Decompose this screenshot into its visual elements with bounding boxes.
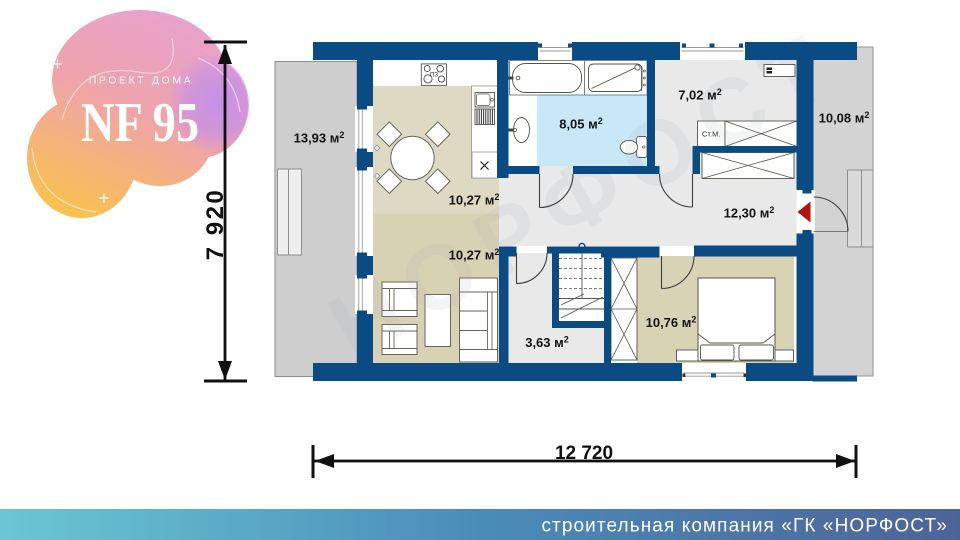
- svg-text:13,93 м2: 13,93 м2: [294, 130, 345, 146]
- svg-text:3,63 м2: 3,63 м2: [525, 334, 569, 350]
- svg-text:12 720: 12 720: [555, 443, 613, 464]
- svg-text:10,76 м2: 10,76 м2: [646, 314, 697, 330]
- svg-text:10,27 м2: 10,27 м2: [449, 247, 500, 263]
- svg-text:ПЗ: ПЗ: [430, 73, 438, 79]
- svg-text:ПРОЕКТ ДОМА: ПРОЕКТ ДОМА: [89, 75, 194, 87]
- svg-text:NF 95: NF 95: [81, 92, 199, 154]
- svg-text:8,05 м2: 8,05 м2: [559, 116, 603, 132]
- svg-text:12,30 м2: 12,30 м2: [724, 205, 775, 221]
- svg-text:7,02 м2: 7,02 м2: [678, 87, 722, 103]
- svg-text:7 920: 7 920: [202, 188, 229, 261]
- svg-text:строительная компания «ГК «НОР: строительная компания «ГК «НОРФОСТ»: [541, 516, 948, 537]
- svg-text:10,08 м2: 10,08 м2: [819, 110, 870, 126]
- svg-text:10,27 м2: 10,27 м2: [449, 192, 500, 208]
